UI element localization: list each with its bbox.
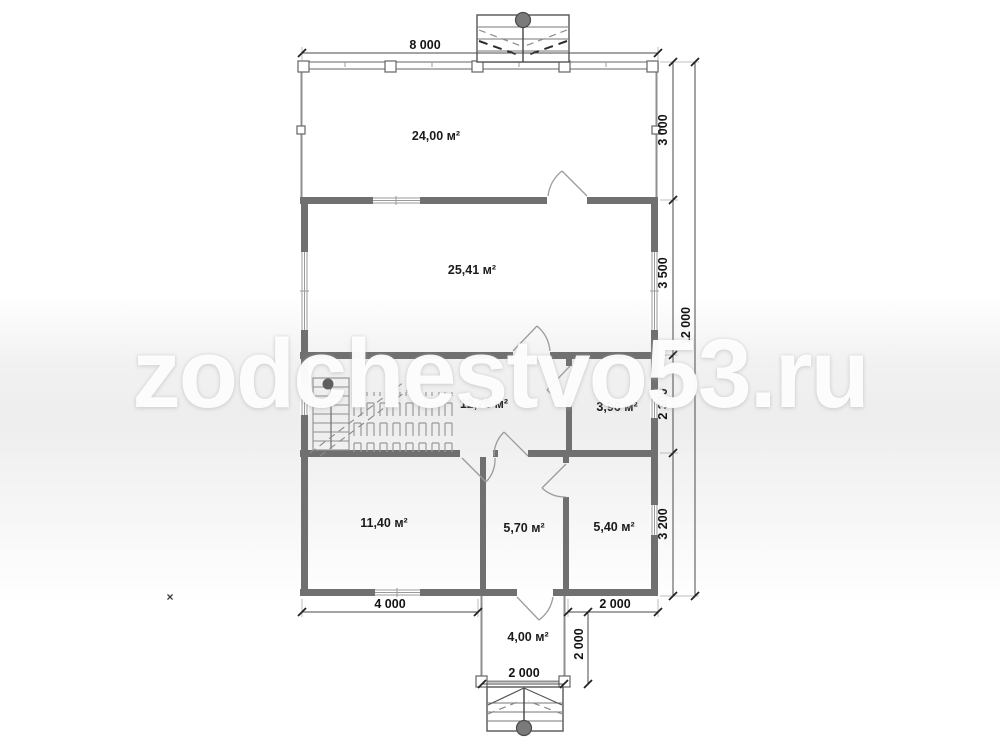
step-post-marker	[517, 721, 532, 736]
step-post-marker	[516, 13, 531, 28]
dim-bottom-left: 4 000	[374, 597, 405, 611]
stair-newel-post	[323, 379, 334, 390]
room-label-570: 5,70 м²	[503, 521, 544, 535]
room-label-540: 5,40 м²	[593, 520, 634, 534]
door-vestibule	[517, 597, 553, 620]
dim-right-2300: 2 300	[656, 388, 670, 419]
dim-right-3500: 3 500	[656, 257, 670, 288]
floor-plan-page: 8 000 3 000 3 500 2 300 3 200 12 000	[0, 0, 1000, 750]
terrace-walls	[297, 61, 660, 197]
window-left-living	[300, 252, 309, 330]
stairs-icon	[310, 378, 454, 456]
dim-top-width: 8 000	[409, 38, 440, 52]
window-bottom-1140	[375, 588, 420, 597]
dim-right-3200: 3 200	[656, 508, 670, 539]
door-living-hall	[513, 326, 550, 351]
room-label-1140: 11,40 м²	[360, 516, 407, 530]
room-label-396: 3,96 м²	[596, 400, 637, 414]
dim-right-3000: 3 000	[656, 114, 670, 145]
door-hall-1140	[462, 458, 495, 482]
dim-vestibule-width: 2 000	[508, 666, 539, 680]
room-labels: 24,00 м² 25,41 м² 12,76 м² 3,96 м² 11,40…	[360, 129, 637, 644]
door-terrace	[548, 171, 587, 196]
dim-right-total: 12 000	[679, 307, 693, 345]
cross-marker: ×	[166, 590, 173, 604]
door-hall-396	[547, 366, 570, 399]
floor-plan-drawing: 8 000 3 000 3 500 2 300 3 200 12 000	[0, 0, 1000, 750]
entry-steps-top-icon	[477, 13, 569, 63]
dim-bottom-right: 2 000	[599, 597, 630, 611]
door-hall-570	[494, 432, 528, 456]
room-label-vestibule: 4,00 м²	[507, 630, 548, 644]
room-label-terrace: 24,00 м²	[412, 129, 460, 143]
door-570-540	[542, 464, 566, 497]
entry-steps-bottom-icon	[487, 687, 563, 736]
window-left-hall	[300, 383, 309, 415]
room-label-living: 25,41 м²	[448, 263, 496, 277]
dim-vestibule-depth: 2 000	[572, 628, 586, 659]
room-label-hall: 12,76 м²	[460, 397, 508, 411]
window-terrace-wall	[373, 196, 420, 205]
